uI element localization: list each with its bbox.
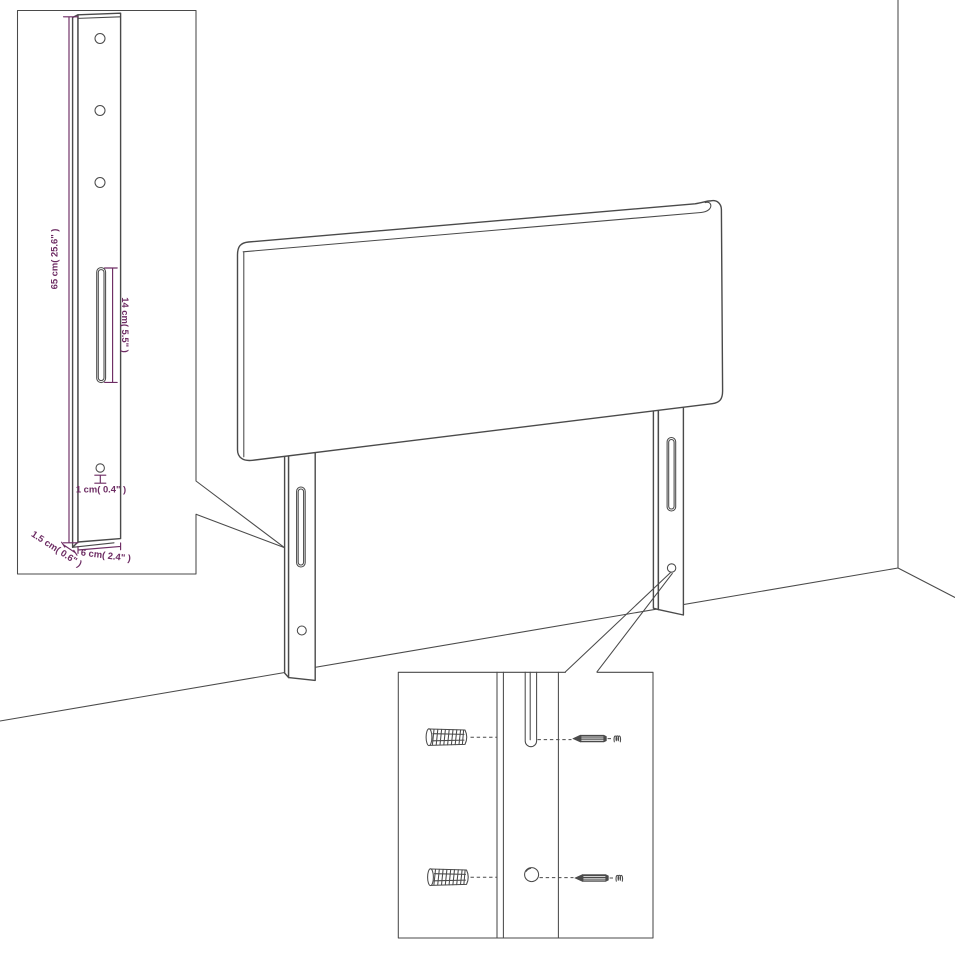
callout-line-inset-to-left-leg-lower (196, 514, 284, 547)
inset-leg-drawing (73, 13, 121, 547)
dim-label-hole-diameter: 1 cm( 0.4" ) (76, 484, 126, 495)
callout-line-inset-to-left-leg-upper (196, 481, 284, 548)
headboard-left-leg (285, 450, 316, 680)
dim-label-leg-height: 65 cm( 25.6" ) (49, 229, 60, 290)
headboard-right-leg (653, 398, 683, 615)
callout-lines (196, 481, 672, 672)
assembly-diagram: 65 cm( 25.6" ) 14 cm( 5.5" ) 1 cm( 0.4" … (0, 0, 955, 955)
assembly-diagram-page: 65 cm( 25.6" ) 14 cm( 5.5" ) 1 cm( 0.4" … (0, 0, 955, 955)
panel-outline (238, 201, 723, 461)
inset-mounting-detail (398, 672, 653, 938)
callout-line-hole-to-detail-right (597, 573, 672, 671)
inset-leg-side-face (73, 15, 78, 548)
right-leg-side-face (653, 398, 658, 610)
inset-leg-front-face (78, 13, 121, 542)
right-leg-front-face (658, 398, 683, 615)
dim-label-slot-length: 14 cm( 5.5" ) (120, 297, 131, 353)
headboard-panel (238, 201, 723, 461)
inset-leg-dimensions: 65 cm( 25.6" ) 14 cm( 5.5" ) 1 cm( 0.4" … (18, 11, 197, 575)
floor-line-right (898, 568, 955, 598)
